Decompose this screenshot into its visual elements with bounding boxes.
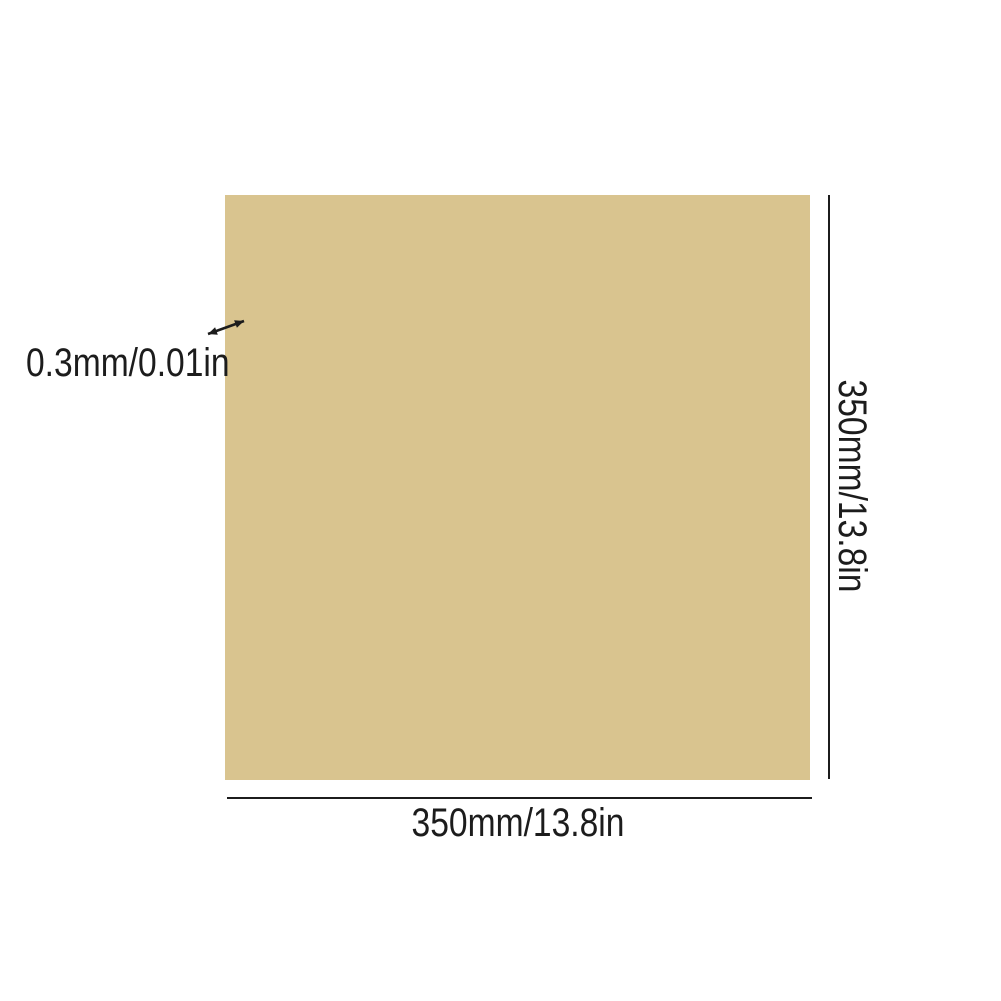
thickness-double-arrow-icon xyxy=(204,316,248,340)
width-dimension-line xyxy=(227,797,812,799)
width-dimension-label: 350mm/13.8in xyxy=(412,803,625,843)
height-dimension-label: 350mm/13.8in xyxy=(832,380,872,593)
sheet-rectangle xyxy=(225,195,810,780)
product-dimension-diagram: 0.3mm/0.01in 350mm/13.8in 350mm/13.8in xyxy=(0,0,1001,1001)
thickness-dimension-label: 0.3mm/0.01in xyxy=(26,343,230,383)
